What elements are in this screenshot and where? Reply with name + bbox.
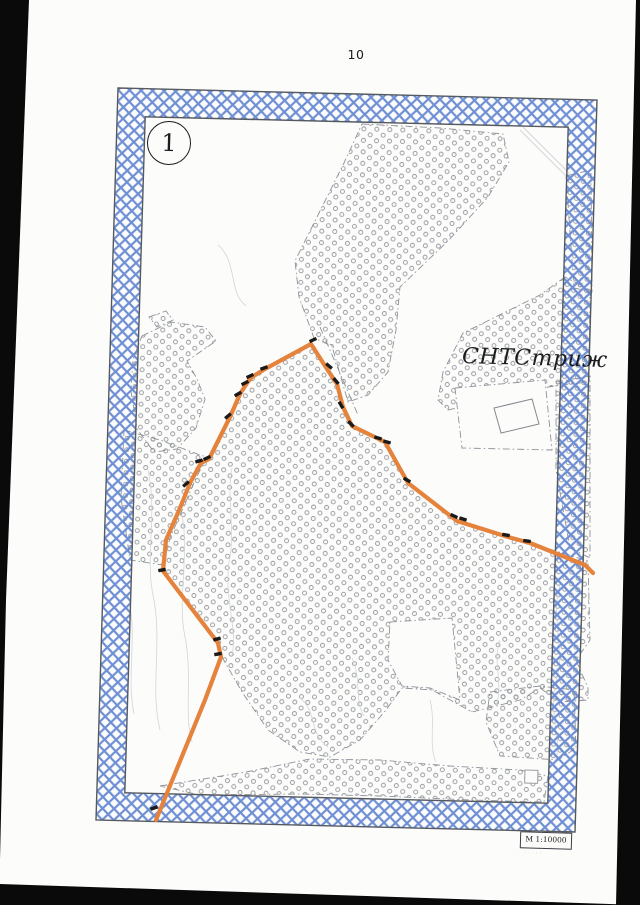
stipple-region-west-island: [131, 322, 216, 452]
small-building-outline: [525, 770, 538, 783]
map-scale-box: М 1:10000: [520, 831, 572, 850]
scanned-map-page: [0, 0, 640, 905]
route-marker: [309, 337, 317, 343]
region-name-label: СНТСтриж: [462, 344, 608, 373]
scale-stamp-artifact: ·····: [524, 850, 544, 858]
page-number: 10: [344, 47, 368, 62]
map-sheet-svg: [0, 0, 640, 905]
vegetation-regions: [121, 124, 592, 802]
sheet-number: 1: [161, 129, 177, 157]
